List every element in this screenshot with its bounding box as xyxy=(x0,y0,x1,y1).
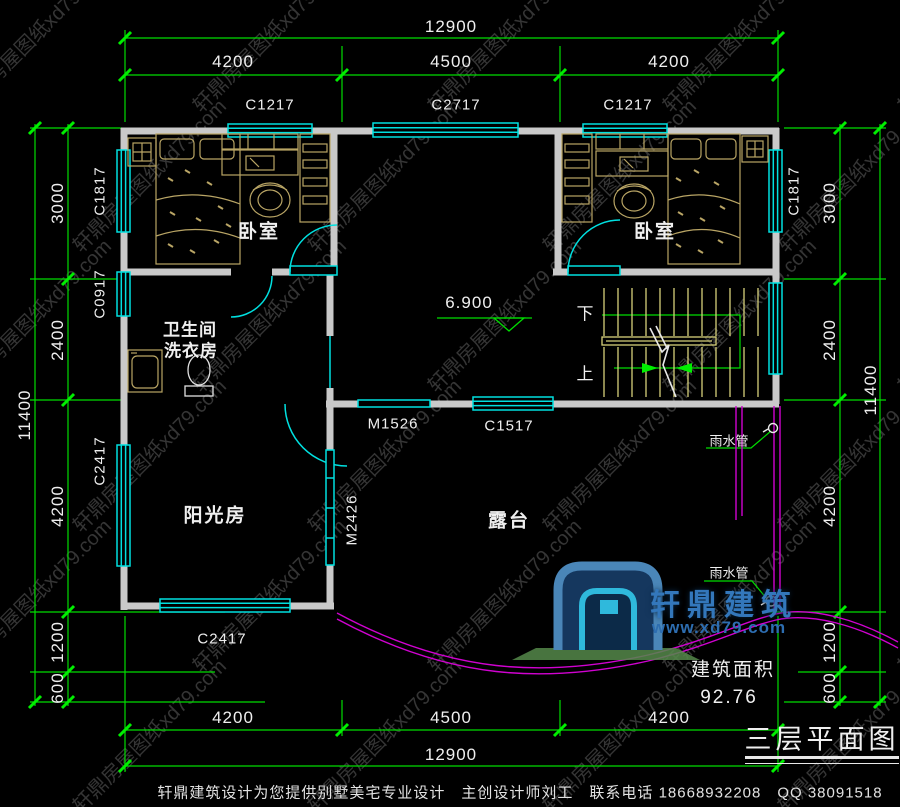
footer-contact: 轩鼎建筑设计为您提供别墅美宅专业设计 主创设计师刘工 联系电话 18668932… xyxy=(157,782,882,803)
dim-left-seg2: 2400 xyxy=(48,319,68,361)
rain-pipe-icon xyxy=(769,424,778,433)
desk xyxy=(596,151,668,176)
dim-left-seg5: 600 xyxy=(48,672,68,703)
drawing-title: 三层平面图 xyxy=(745,718,900,757)
floorplan-drawing xyxy=(0,0,900,807)
furniture-bedroom-right xyxy=(562,134,768,264)
dim-top-seg3: 4200 xyxy=(648,52,690,72)
chair xyxy=(614,184,654,218)
dim-bottom-overall: 12900 xyxy=(425,745,477,765)
dim-right-seg5: 600 xyxy=(820,672,840,703)
stair-down-label: 下 xyxy=(577,300,594,325)
window-c1817-right-stair xyxy=(769,283,782,374)
door-bathroom xyxy=(231,276,272,317)
window-c2717 xyxy=(373,123,518,137)
stair-up-label: 上 xyxy=(577,360,594,385)
dim-left-seg3: 4200 xyxy=(48,485,68,527)
door-bedroom-left xyxy=(290,225,337,275)
title-underline-thick xyxy=(745,756,899,759)
window-c1517 xyxy=(473,397,553,410)
staircase xyxy=(602,288,758,397)
window-c2417-left xyxy=(117,445,130,566)
chair xyxy=(250,183,290,217)
rain-pipe-label-top: 雨水管 xyxy=(709,431,748,450)
door-label-m1526: M1526 xyxy=(368,416,419,433)
dim-left-seg4: 1200 xyxy=(48,621,68,663)
window-c0917-left xyxy=(117,272,130,316)
rain-pipe-symbols xyxy=(761,424,778,607)
window-label-c1217-left: C1217 xyxy=(245,97,294,114)
door-m1526 xyxy=(285,400,430,466)
dim-top-seg1: 4200 xyxy=(212,52,254,72)
elevation-mark: 6.900 xyxy=(445,293,493,313)
dim-right-seg2: 2400 xyxy=(820,319,840,361)
dim-bottom-seg1: 4200 xyxy=(212,708,254,728)
window-label-c1817-left: C1817 xyxy=(92,166,109,215)
bed xyxy=(668,134,740,264)
floorplan-canvas: 轩鼎房屋图纸xd79.com轩鼎房屋图纸xd79.com轩鼎房屋图纸xd79.c… xyxy=(0,0,900,807)
building-area-label: 建筑面积 xyxy=(691,655,775,682)
dim-right-seg1: 3000 xyxy=(820,182,840,224)
rain-pipe-label-bottom: 雨水管 xyxy=(709,563,748,582)
window-label-c2717: C2717 xyxy=(431,97,480,114)
dim-bottom-seg3: 4200 xyxy=(648,708,690,728)
door-label-m2426: M2426 xyxy=(344,495,361,546)
window-c2417-bottom xyxy=(160,599,290,612)
logo-url: www.xd79.com xyxy=(652,618,786,638)
door-m2426-sliding xyxy=(326,450,334,565)
window-label-c0917: C0917 xyxy=(92,269,109,318)
dim-top-seg2: 4500 xyxy=(430,52,472,72)
dim-right-seg3: 4200 xyxy=(820,485,840,527)
washing-machine xyxy=(128,350,162,392)
dim-bottom-seg2: 4500 xyxy=(430,708,472,728)
dim-top-overall: 12900 xyxy=(425,17,477,37)
room-label-sunroom: 阳光房 xyxy=(183,501,246,528)
window-c1817-right-top xyxy=(769,150,782,232)
room-label-bedroom-left: 卧室 xyxy=(238,217,280,244)
wardrobe xyxy=(562,134,592,222)
bed xyxy=(156,134,240,264)
window-c1217-left xyxy=(228,124,312,137)
dim-left-overall: 11400 xyxy=(15,389,35,440)
dim-right-seg4: 1200 xyxy=(820,621,840,663)
wardrobe xyxy=(300,134,330,222)
door-bedroom-right xyxy=(568,220,620,275)
dim-right-overall: 11400 xyxy=(861,364,881,415)
window-label-c2417-bottom: C2417 xyxy=(197,631,246,648)
building-area-value: 92.76 xyxy=(700,687,758,709)
room-label-laundry: 洗衣房 xyxy=(164,337,218,362)
window-label-c1517: C1517 xyxy=(484,418,533,435)
window-label-c1817-right: C1817 xyxy=(786,166,803,215)
dim-left-seg1: 3000 xyxy=(48,182,68,224)
window-label-c2417-left: C2417 xyxy=(92,436,109,485)
window-label-c1217-right: C1217 xyxy=(603,97,652,114)
room-label-terrace: 露台 xyxy=(488,506,530,533)
title-underline-thin xyxy=(745,763,899,764)
room-label-bedroom-right: 卧室 xyxy=(634,217,676,244)
